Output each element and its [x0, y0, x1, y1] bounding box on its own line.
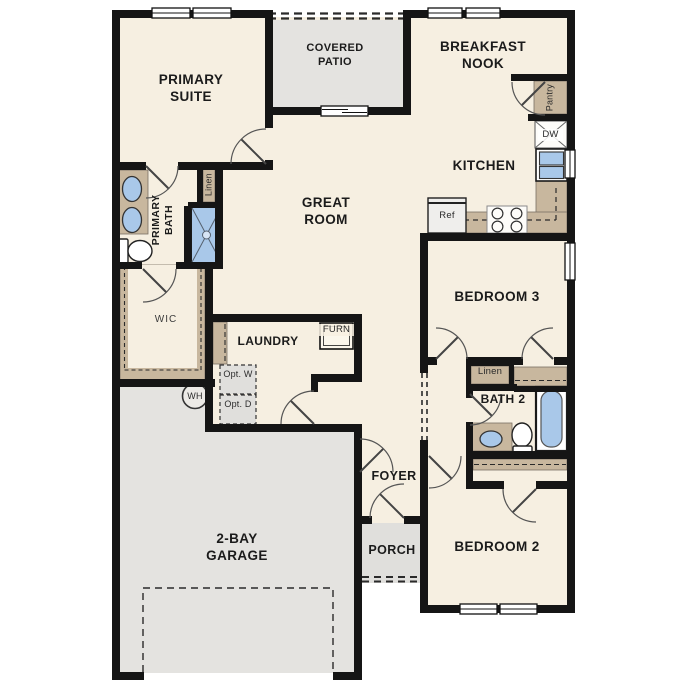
- label-hall-linen: Linen: [470, 366, 510, 378]
- label-opt-washer: Opt. W: [223, 368, 253, 380]
- kitchen-sink-icon: [536, 149, 567, 181]
- primary-toilet-icon: [117, 239, 152, 263]
- room-label-bath2: BATH 2: [480, 392, 526, 407]
- label-dw: DW: [538, 129, 563, 141]
- label-ref: Ref: [432, 210, 462, 222]
- room-label-kitchen: KITCHEN: [434, 158, 534, 175]
- label-primary-linen: Linen: [203, 168, 214, 202]
- room-label-laundry: LAUNDRY: [228, 334, 308, 349]
- room-label-wic: WIC: [146, 314, 186, 327]
- bedroom2-closet-shelf: [473, 459, 567, 470]
- room-label-covered-patio: COVERED PATIO: [293, 42, 377, 70]
- label-furn: FURN: [319, 324, 354, 336]
- room-label-bedroom2: BEDROOM 2: [442, 539, 552, 556]
- tub-icon: [536, 387, 567, 451]
- label-pantry: Pantry: [544, 78, 555, 118]
- room-label-bedroom3: BEDROOM 3: [442, 289, 552, 306]
- room-label-foyer: FOYER: [364, 469, 424, 485]
- stove-icon: [487, 206, 527, 233]
- room-label-primary-bath: PRIMARY BATH: [150, 188, 176, 252]
- garage-floor-left: [120, 387, 205, 673]
- room-label-great-room: GREAT ROOM: [291, 195, 361, 229]
- bath2-sink-icon: [480, 431, 502, 447]
- room-label-breakfast-nook: BREAKFAST NOOK: [423, 39, 543, 73]
- floorplan: PRIMARY SUITE COVERED PATIO BREAKFAST NO…: [0, 0, 687, 687]
- bedroom3-closet-shelf: [514, 367, 567, 386]
- bath2-toilet-icon: [512, 423, 532, 453]
- label-opt-dryer: Opt. D: [223, 398, 253, 410]
- floorplan-svg: [0, 0, 687, 687]
- room-label-garage: 2-BAY GARAGE: [192, 531, 282, 565]
- room-label-primary-suite: PRIMARY SUITE: [136, 72, 246, 106]
- patio-slider-door: [321, 106, 368, 116]
- label-water-heater: WH: [182, 391, 208, 402]
- room-label-porch: PORCH: [362, 543, 422, 559]
